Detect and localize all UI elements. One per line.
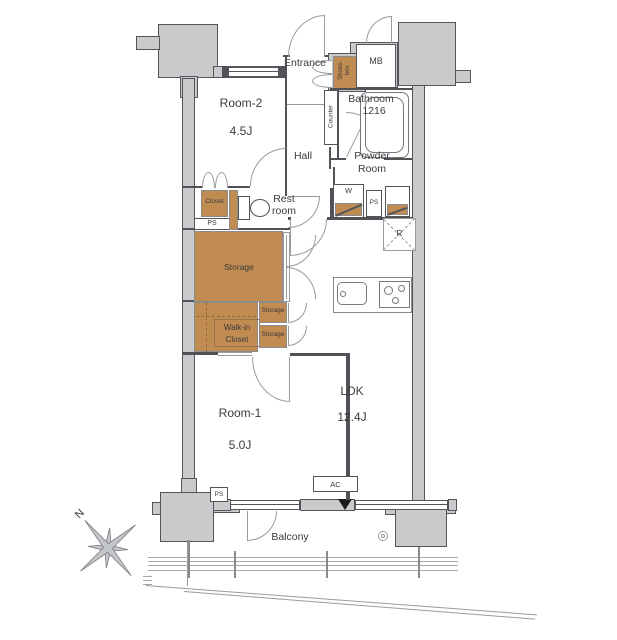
- storage-door-arc: [286, 267, 316, 299]
- powder-room-label-2: Room: [340, 163, 404, 176]
- wic-label-1: Walk-in: [214, 322, 260, 334]
- balcony-wall-seg: [448, 499, 457, 511]
- hall-label: Hall: [283, 150, 323, 162]
- closet-label: Closet: [200, 198, 229, 205]
- wall: [290, 353, 348, 356]
- ldk-size-label: 12.4J: [318, 410, 386, 424]
- wall: [182, 186, 202, 188]
- entrance-step-line: [287, 104, 329, 105]
- closet-fold-door: [202, 172, 215, 188]
- sliding-door-leaf: [329, 147, 331, 169]
- ps-label: PS: [366, 199, 382, 206]
- window-ldk-line: [356, 504, 447, 505]
- storage-main-label: Storage: [196, 262, 282, 272]
- balcony-label: Balcony: [258, 531, 322, 543]
- counter-label: Counter: [328, 93, 335, 141]
- ground-line: [146, 585, 537, 615]
- entry-direction-marker: [338, 499, 352, 510]
- wall-bath-top: [330, 88, 412, 90]
- restroom-label-1: Rest: [260, 194, 308, 206]
- storage-lower-label: Storage: [259, 331, 287, 338]
- pillar-top-right: [398, 22, 456, 86]
- restroom-label: Rest room: [260, 194, 308, 217]
- ldk-label: LDK: [320, 384, 384, 398]
- room2-label: Room-2: [196, 96, 286, 110]
- wic-threshold: [218, 355, 252, 356]
- ac-label: AC: [313, 480, 358, 489]
- room2-door-arc: [250, 148, 286, 186]
- refrigerator-label: R: [383, 228, 416, 238]
- meter-box-label: MB: [356, 56, 396, 66]
- window-room1-line: [231, 504, 299, 505]
- washer-label: W: [333, 186, 364, 195]
- faucet-icon: [340, 291, 346, 297]
- pillar-top-right-arm: [455, 70, 471, 83]
- window-room1: [230, 500, 300, 510]
- right-outer-wall: [412, 85, 425, 502]
- wic-threshold: [218, 352, 252, 353]
- railing-post: [326, 551, 328, 578]
- entrance-label: Entrance: [281, 57, 329, 69]
- drain-icon-inner: [381, 534, 385, 538]
- entrance-door-arc: [288, 15, 325, 57]
- room1-size-label: 5.0J: [190, 438, 290, 452]
- window-room2-line: [229, 71, 278, 72]
- pillar-top-left: [158, 24, 218, 78]
- mb-door-arc: [366, 16, 392, 43]
- powder-room-label: Powder Room: [340, 150, 404, 175]
- railing-post: [234, 551, 236, 578]
- storage-upper-label: Storage: [259, 307, 287, 314]
- wall: [228, 186, 250, 188]
- balcony-railing: [148, 565, 458, 566]
- shoes-box-label: Shoes- box: [338, 49, 352, 91]
- burner-icon: [392, 297, 399, 304]
- balcony-railing: [148, 561, 458, 562]
- bathroom-label: Bathroom: [336, 93, 406, 105]
- room2-size-label: 4.5J: [196, 124, 286, 138]
- burner-icon: [384, 286, 393, 295]
- restroom-label-2: room: [260, 206, 308, 218]
- toilet-tank: [238, 196, 250, 220]
- walk-in-closet-label: Walk-in Closet: [214, 322, 260, 346]
- balcony-railing: [148, 570, 458, 571]
- wic-hanger-pipe: [196, 316, 256, 317]
- shoes-fold-door: [312, 74, 332, 88]
- bathroom-size-label: 1216: [344, 105, 404, 117]
- closet-fold-door: [215, 172, 228, 188]
- balcony-railing: [148, 557, 458, 558]
- storage-upper-door-arc: [288, 303, 307, 323]
- railing-post: [188, 540, 190, 578]
- wic-hanger-pipe: [206, 302, 207, 352]
- burner-icon: [398, 285, 405, 292]
- shoes-box-label-1: Shoes-: [338, 49, 345, 91]
- shoes-box-label-2: box: [345, 49, 352, 91]
- ps-label: PS: [194, 220, 230, 227]
- powder-room-label-1: Powder: [340, 150, 404, 163]
- wall: [182, 352, 218, 355]
- room1-label: Room-1: [190, 406, 290, 420]
- window-room2: [228, 67, 279, 77]
- window-ldk: [355, 500, 448, 510]
- railing-post: [418, 547, 420, 578]
- floor-plan: Shoes- box MB Entrance Bathroom 1216 Cou…: [0, 0, 617, 640]
- pillar-bottom-left: [160, 492, 214, 542]
- wic-label-2: Closet: [214, 334, 260, 346]
- storage-door-arc: [286, 235, 316, 267]
- storage-lower-door-arc: [288, 326, 307, 346]
- ps-label: PS: [210, 491, 228, 498]
- meter-box: [356, 44, 396, 88]
- ground-line: [184, 591, 535, 620]
- room1-door-arc: [252, 357, 290, 402]
- pillar-top-left-arm: [136, 36, 160, 50]
- restroom-cabinet: [229, 190, 238, 230]
